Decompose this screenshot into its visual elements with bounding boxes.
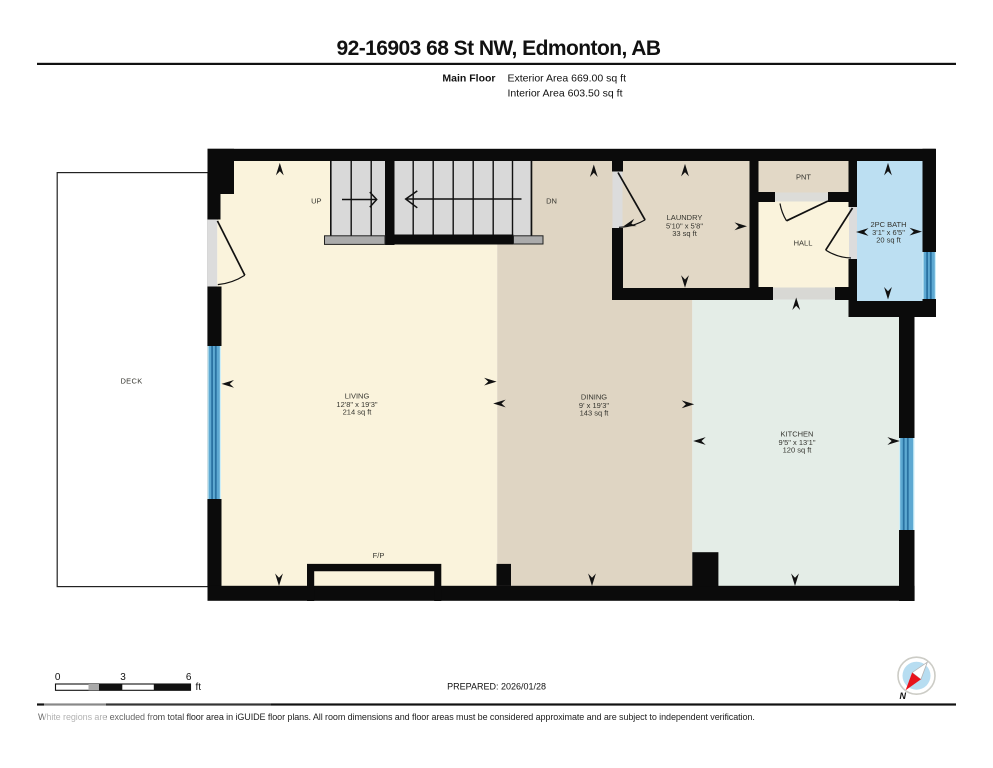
svg-text:0: 0 (55, 672, 61, 683)
svg-text:PNT: PNT (796, 172, 811, 181)
svg-text:20 sq ft: 20 sq ft (876, 235, 902, 244)
svg-text:214 sq ft: 214 sq ft (343, 408, 373, 417)
svg-text:6: 6 (186, 672, 192, 683)
svg-text:120 sq ft: 120 sq ft (783, 446, 813, 455)
svg-text:HALL: HALL (794, 239, 813, 248)
svg-text:ft: ft (196, 682, 202, 693)
svg-text:UP: UP (311, 196, 321, 205)
svg-text:Exterior Area 669.00 sq ft: Exterior Area 669.00 sq ft (508, 73, 627, 85)
svg-text:PREPARED: 2026/01/28: PREPARED: 2026/01/28 (447, 681, 546, 691)
svg-text:143 sq ft: 143 sq ft (580, 409, 610, 418)
svg-text:DECK: DECK (120, 376, 142, 385)
svg-text:F/P: F/P (373, 551, 385, 560)
svg-text:N: N (900, 691, 907, 701)
svg-text:3: 3 (120, 672, 126, 683)
svg-text:92-16903 68 St NW, Edmonton, A: 92-16903 68 St NW, Edmonton, AB (336, 37, 660, 60)
svg-text:Main Floor: Main Floor (442, 73, 495, 85)
svg-text:33 sq ft: 33 sq ft (672, 229, 698, 238)
svg-text:Interior Area 603.50 sq ft: Interior Area 603.50 sq ft (508, 88, 623, 100)
svg-text:DN: DN (546, 196, 557, 205)
